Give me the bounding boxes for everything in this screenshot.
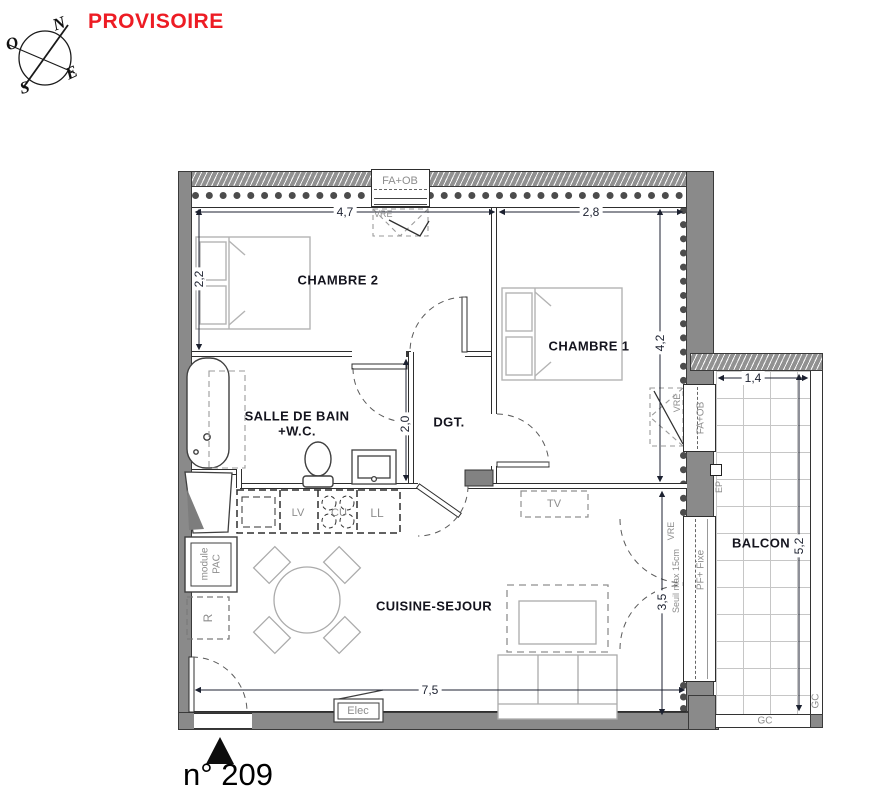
cooktop-label: CU (331, 507, 347, 519)
module-pac-line2: PAC (211, 548, 223, 581)
vre-north-label: VRE (374, 209, 393, 219)
bed-chambre2-icon (196, 237, 310, 329)
module-pac-line1: module (200, 548, 212, 581)
dim-sejour-width: 7,5 (419, 683, 442, 697)
seuil-label: Seuil max 15cm (671, 549, 681, 613)
module-pac-label: module PAC (200, 548, 223, 581)
room-label-chambre2: CHAMBRE 2 (298, 273, 379, 288)
bathtub-icon (187, 358, 229, 468)
window-east-label: FA+OB (696, 402, 707, 435)
room-label-salle-de-bain: SALLE DE BAIN (245, 409, 350, 424)
fridge-label: R (201, 614, 215, 623)
dim-balcon-depth: 5,2 (792, 535, 806, 558)
room-label-wc: +W.C. (278, 424, 316, 439)
bed-chambre1-icon (502, 288, 622, 380)
dim-balcon-width: 1,4 (742, 371, 765, 385)
dim-chambre2-depth: 2,2 (192, 268, 206, 291)
window-north-sill (374, 198, 427, 205)
sideboard-icon (507, 585, 608, 652)
vre-balcony-label: VRE (666, 522, 676, 541)
room-label-dgt: DGT. (433, 415, 464, 430)
dishwasher-label: LV (292, 507, 305, 519)
duct-block (465, 470, 493, 486)
window-north-centerline (374, 189, 427, 190)
floorplan-page: N O E S PROVISOIRE (0, 0, 894, 800)
door-leaves (189, 297, 549, 712)
rainwater-pipe-box (710, 464, 722, 476)
toilet-icon (303, 442, 333, 487)
gc-east-label: GC (811, 694, 822, 709)
washbasin-icon (352, 450, 396, 484)
room-label-balcon: BALCON (732, 536, 790, 551)
dim-chambre1-depth: 4,2 (653, 332, 667, 355)
entrance-threshold (194, 713, 252, 729)
plan-linework (0, 0, 894, 800)
window-north-label: FA+OB (382, 175, 418, 187)
washer-label: LL (370, 506, 383, 520)
unit-number: n° 209 (183, 757, 273, 793)
balcony-door (683, 516, 716, 682)
tv-label: TV (547, 498, 561, 510)
elec-label: Elec (347, 705, 368, 717)
balcony-door-label: PF+ Fixe (696, 550, 707, 590)
ep-label: EP (714, 481, 724, 493)
sofa-icon (498, 655, 617, 719)
dim-bathroom-depth: 2,0 (398, 413, 412, 436)
room-label-cuisine-sejour: CUISINE-SEJOUR (376, 599, 492, 614)
dining-table-icon (254, 547, 361, 654)
dim-chambre2-width: 4,7 (334, 205, 357, 219)
balcony-door-centerline (695, 519, 696, 679)
window-swing-top-solid (389, 220, 429, 236)
room-label-chambre1: CHAMBRE 1 (549, 339, 630, 354)
gc-south-label: GC (758, 716, 773, 727)
balcony-door-fixed-panel (707, 519, 708, 679)
dim-sejour-depth: 3,5 (655, 591, 669, 614)
vre-east-label: VRE (672, 394, 682, 413)
dim-chambre1-width: 2,8 (580, 205, 603, 219)
kitchen-sink-icon (185, 472, 232, 533)
